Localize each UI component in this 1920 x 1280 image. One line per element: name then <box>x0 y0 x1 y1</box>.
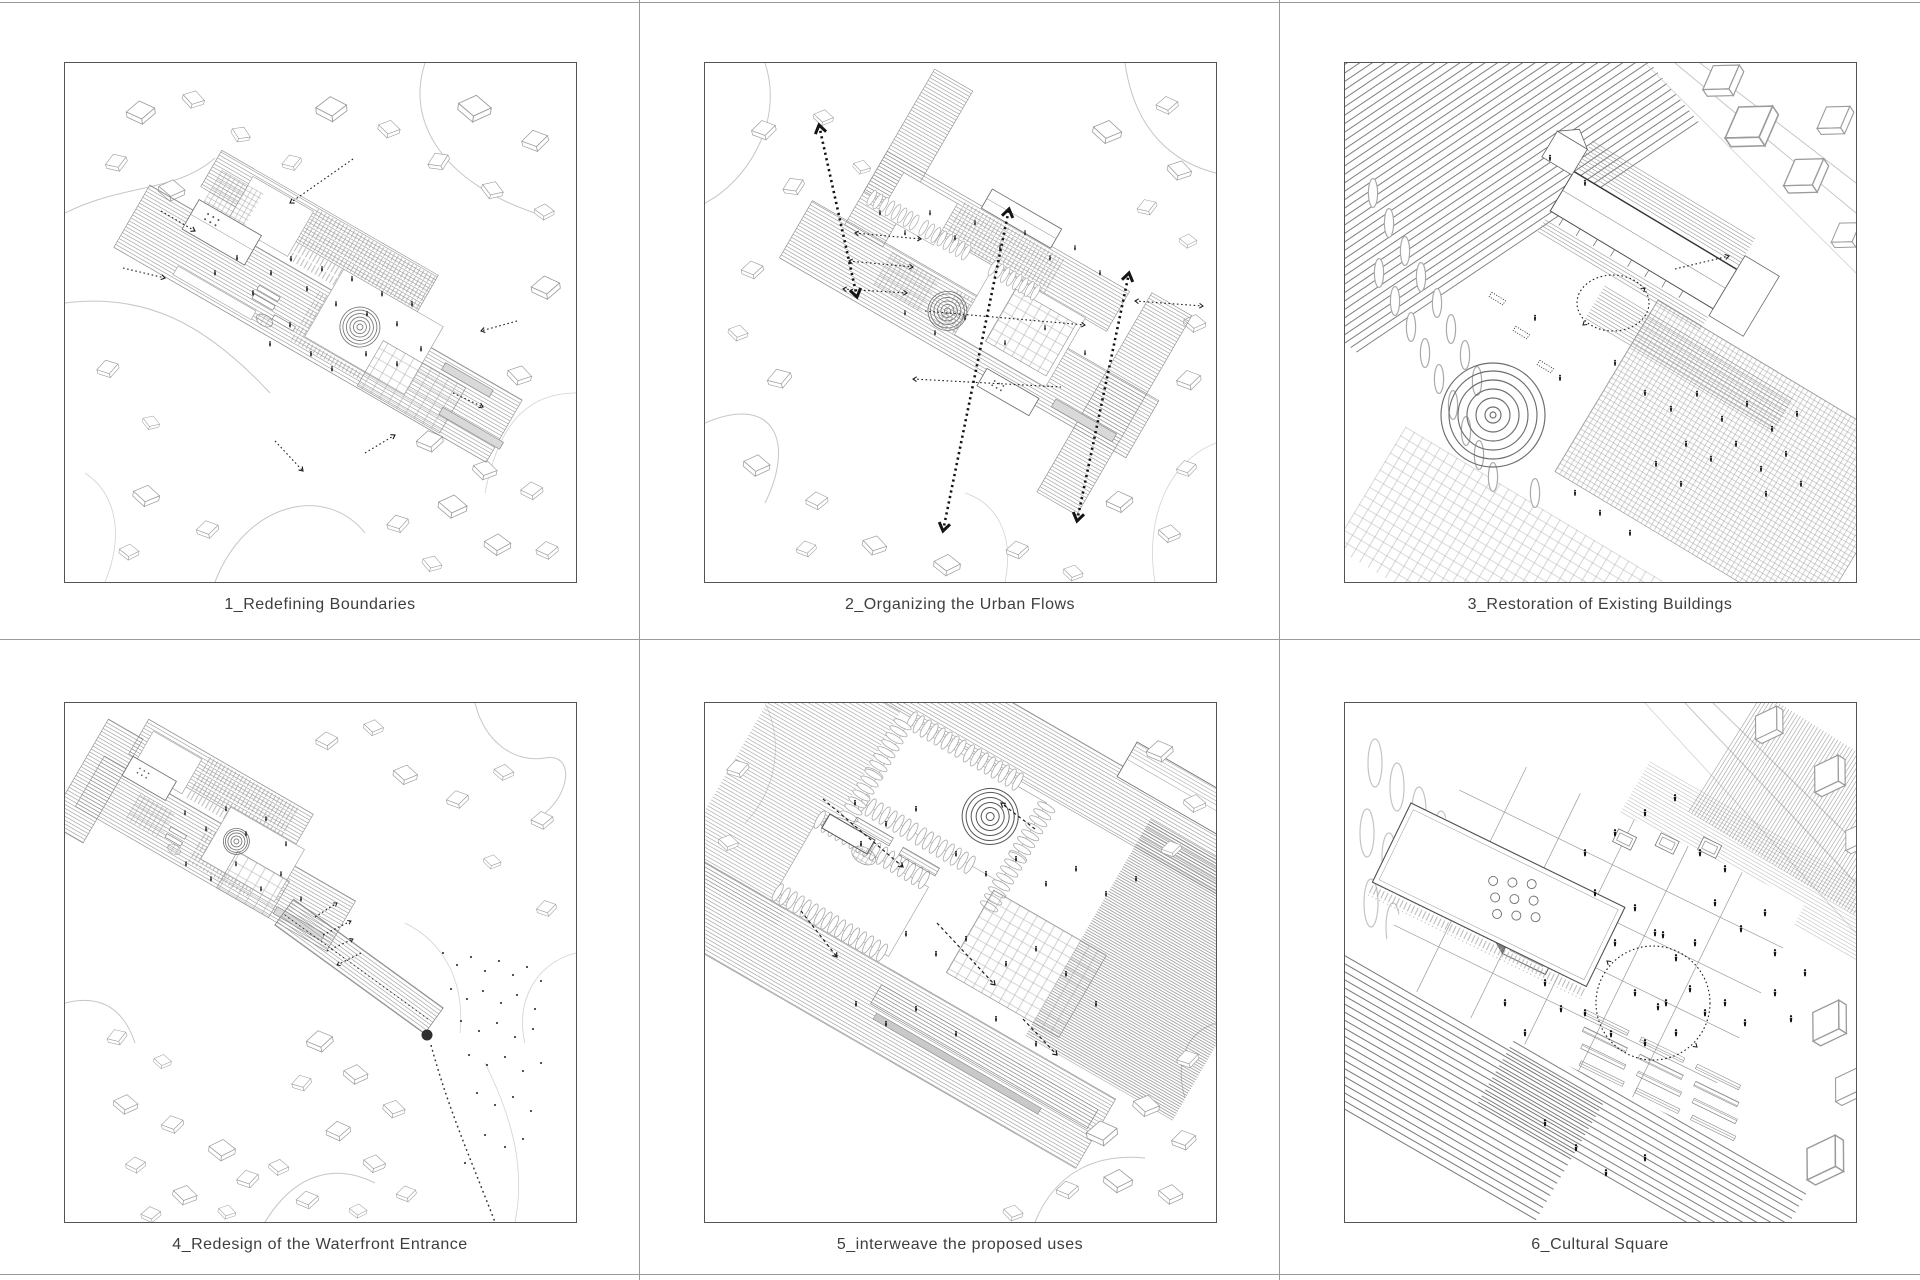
diagram-caption-1: 1_Redefining Boundaries <box>0 596 640 614</box>
city-buildings <box>105 718 558 1222</box>
diagram-sheet: 1_Redefining Boundaries <box>0 0 1920 1280</box>
diagram-caption-2: 2_Organizing the Urban Flows <box>640 596 1280 614</box>
project-site <box>705 703 1216 1198</box>
entrance-node <box>422 1030 433 1041</box>
diagram-frame-4 <box>64 702 577 1223</box>
diagram-frame-1 <box>64 62 577 583</box>
axonometric-drawing-cultural-square <box>1345 703 1856 1222</box>
axonometric-drawing-urban-flows <box>705 63 1216 582</box>
shore-specks <box>442 952 542 1164</box>
axonometric-drawing-interweave-uses <box>705 703 1216 1222</box>
diagram-frame-5 <box>704 702 1217 1223</box>
axonometric-drawing-redefining-boundaries <box>65 63 576 582</box>
diagram-panel-6: 6_Cultural Square <box>1280 640 1920 1280</box>
diagram-panel-4: 4_Redesign of the Waterfront Entrance <box>0 640 640 1280</box>
axonometric-drawing-restoration <box>1345 63 1856 582</box>
diagram-panel-2: 2_Organizing the Urban Flows <box>640 0 1280 640</box>
diagram-frame-6 <box>1344 702 1857 1223</box>
diagram-caption-3: 3_Restoration of Existing Buildings <box>1280 596 1920 614</box>
waterfront-pier <box>275 899 443 1034</box>
diagram-caption-4: 4_Redesign of the Waterfront Entrance <box>0 1236 640 1254</box>
diagram-panel-3: 3_Restoration of Existing Buildings <box>1280 0 1920 640</box>
diagram-panel-1: 1_Redefining Boundaries <box>0 0 640 640</box>
benches <box>1489 292 1553 373</box>
diagram-panel-5: 5_interweave the proposed uses <box>640 640 1280 1280</box>
axonometric-drawing-waterfront-entrance <box>65 703 576 1222</box>
project-site <box>742 63 1216 522</box>
entry-path-dotted <box>431 1045 495 1222</box>
diagram-caption-5: 5_interweave the proposed uses <box>640 1236 1280 1254</box>
plaza-grid-fine <box>1555 300 1856 582</box>
diagram-frame-3 <box>1344 62 1857 583</box>
diagram-caption-6: 6_Cultural Square <box>1280 1236 1920 1254</box>
diagram-frame-2 <box>704 62 1217 583</box>
